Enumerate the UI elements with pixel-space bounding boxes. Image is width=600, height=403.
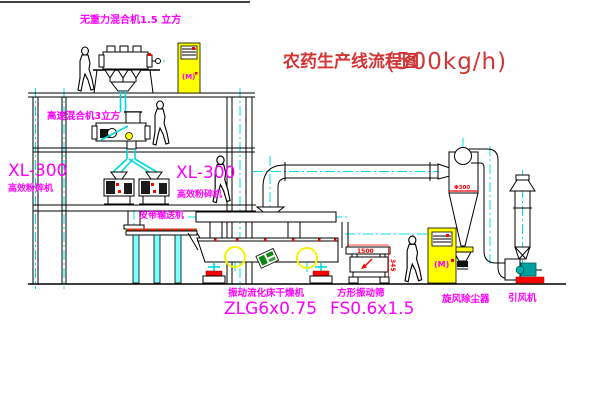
cabinet-motor-label-2: (M): [434, 260, 449, 269]
sieve-model-label: FS0.6x1.5: [330, 299, 414, 319]
cabinet-motor-label: (M): [182, 73, 195, 81]
gravity-mixer-machine: [93, 46, 161, 112]
control-cabinet-ground: (M): [428, 228, 456, 283]
speed-mixer-label: 高速混合机3立方: [47, 110, 121, 122]
sieve-name-label: 方形振动筛: [337, 287, 385, 299]
sieve-width-dimension: 1500: [357, 248, 374, 255]
belt-conveyor-label: 皮带输送机: [138, 209, 184, 221]
induced-draft-fan-machine: [516, 263, 544, 283]
person-figure-roof: [78, 47, 94, 91]
diagram-title-capacity: (500kg/h): [386, 49, 507, 75]
fluid-bed-dryer-machine: [196, 212, 348, 283]
person-figure-floor2: [153, 101, 169, 145]
cyclone-label: 旋风除尘器: [441, 293, 490, 305]
mill-left-name-label: 高效粉碎机: [8, 182, 53, 194]
exhaust-duct-main: [257, 162, 450, 214]
pulverizer-left: [104, 172, 134, 205]
sieve-height-dimension: 345: [389, 259, 396, 272]
flow-diagram-canvas: (M): [0, 0, 600, 403]
mill-mid-name-label: 高效粉碎机: [177, 188, 222, 200]
pesticide-line-drawing: (M): [0, 0, 600, 403]
dryer-model-label: ZLG6x0.75: [224, 299, 317, 319]
control-cabinet-roof: (M): [178, 43, 200, 93]
mill-left-model-label: XL-300: [8, 161, 67, 181]
gravity-mixer-label: 无重力混合机1.5 立方: [79, 13, 181, 26]
person-figure-ground: [405, 236, 422, 282]
fan-label: 引风机: [508, 292, 537, 304]
cyclone-dia-dimension: Φ300: [454, 185, 470, 191]
mill-mid-model-label: XL-300: [176, 163, 235, 183]
dryer-foot-left: [203, 263, 225, 283]
dryer-name-label: 振动流化床干燥机: [228, 287, 305, 299]
pulverizer-right: [139, 172, 169, 205]
belt-conveyor-machine: [124, 211, 205, 283]
